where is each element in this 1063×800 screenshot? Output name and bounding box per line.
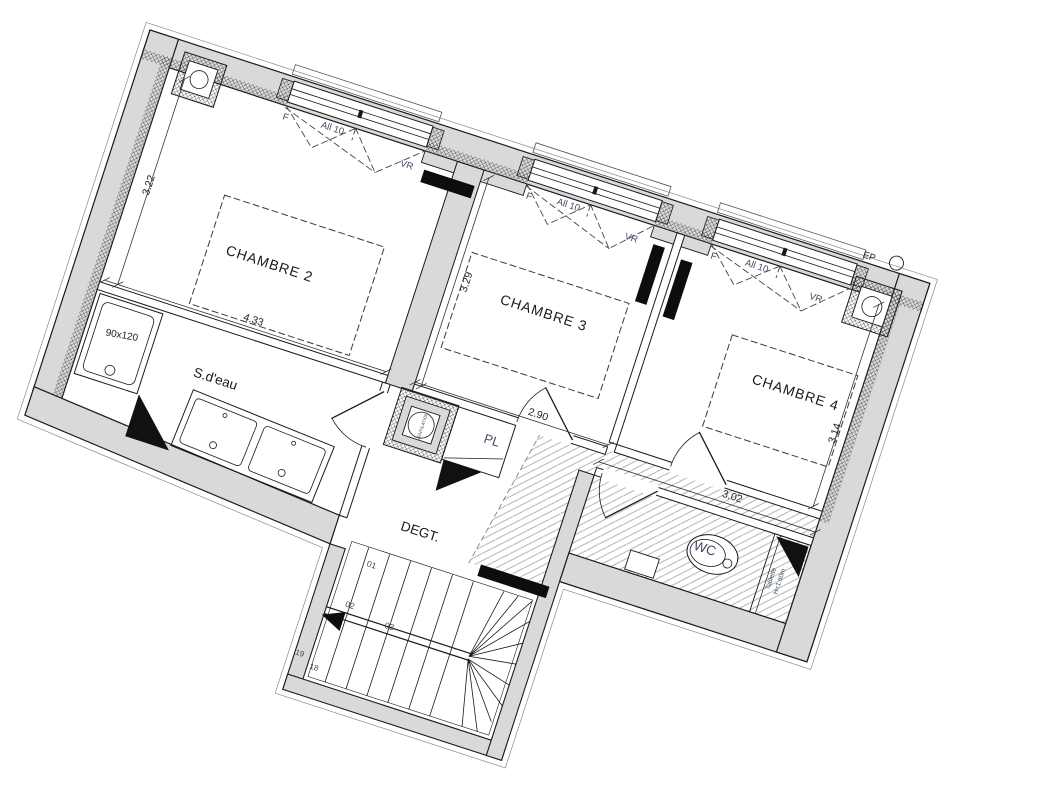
room-label-chambre4: CHAMBRE 4 (750, 371, 841, 414)
window4-vr: VR (808, 291, 824, 306)
floor-plan-svg: CHAMBRE 2CHAMBRE 3CHAMBRE 4S.d'eauDEGT.W… (0, 0, 1063, 800)
stair-wall-south (283, 674, 507, 760)
ep-downpipe-circle (888, 254, 906, 272)
shower-size-label: 90x120 (105, 328, 140, 345)
room-label-chambre2: CHAMBRE 2 (224, 242, 315, 285)
floor-plan-page: CHAMBRE 2CHAMBRE 3CHAMBRE 4S.d'eauDEGT.W… (0, 0, 1063, 800)
dim-4-33: 4.33 (242, 311, 265, 329)
stair-step-03: 03 (383, 620, 395, 633)
stair-step-02: 02 (344, 599, 356, 612)
window2-vr: VR (399, 158, 415, 173)
dim-3-22: 3.22 (140, 174, 158, 197)
dim-3-14: 3.14 (826, 422, 844, 445)
room-label-chambre3: CHAMBRE 3 (498, 291, 589, 334)
wall-sdeau-north (97, 282, 388, 383)
window2-f: F (281, 112, 290, 124)
dim-3-29: 3.29 (458, 270, 476, 293)
insulation-west (53, 55, 173, 398)
window4-f: F (709, 251, 718, 263)
stair-step-18: 18 (308, 662, 320, 673)
wall-wedge-pl (434, 460, 482, 503)
room-label-sdeau: S.d'eau (192, 365, 240, 393)
exterior-wall-east (776, 274, 929, 662)
casement-swing-lines (275, 106, 849, 323)
stair-step-01: 01 (366, 558, 378, 571)
room-label-pl: PL (482, 431, 502, 450)
window3-vr: VR (623, 231, 639, 246)
window3-f: F (525, 191, 534, 203)
stair-railing (324, 607, 470, 660)
room-label-degt: DEGT. (399, 518, 441, 545)
